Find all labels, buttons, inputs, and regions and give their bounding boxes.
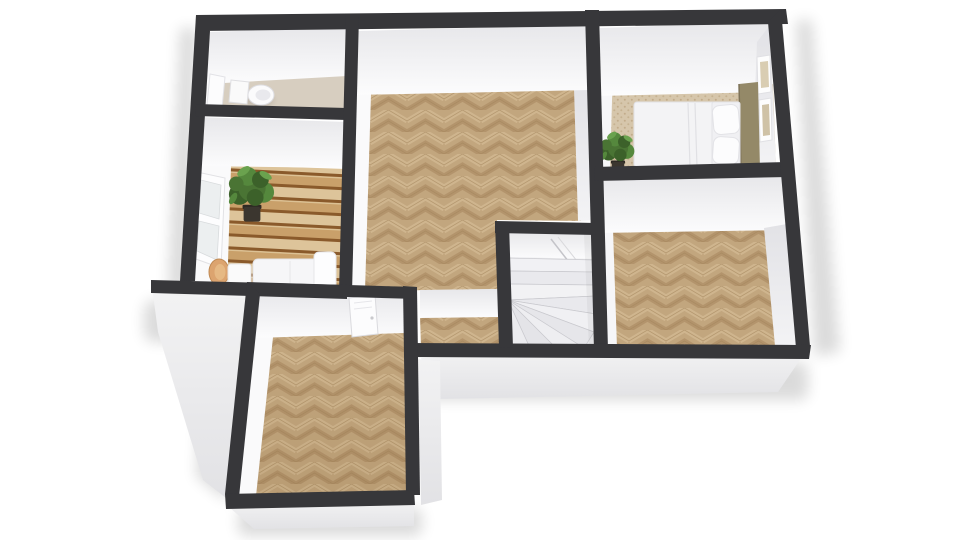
bed-pillow-upper	[712, 104, 740, 135]
wall-stair-top	[495, 221, 596, 235]
wall-frame-lower-art	[762, 104, 770, 136]
window-pane-upper	[199, 180, 221, 219]
stairwell	[506, 232, 600, 348]
stair-tread-1	[506, 258, 596, 272]
bed-pillow-lower	[712, 136, 740, 165]
floor-plan-canvas	[0, 0, 960, 540]
wc-door	[207, 74, 225, 108]
floor-plan-render	[0, 0, 960, 540]
toilet-tank	[229, 80, 249, 104]
stair-north-wall-face	[506, 232, 596, 259]
eastroom-floor	[601, 225, 781, 348]
wall-outer-bottom-right	[406, 343, 811, 359]
bed-headboard	[739, 82, 760, 171]
hallway-floor	[420, 315, 500, 348]
balcony-north-wall-face	[193, 117, 347, 168]
exterior-face-southroom-east	[418, 359, 442, 505]
room-bedroom	[596, 22, 776, 173]
room-balcony	[189, 117, 347, 297]
hallway-north-wall-face	[420, 289, 498, 318]
wall-frame-upper-art	[760, 61, 769, 88]
round-chair-seat	[215, 264, 226, 280]
room-east	[598, 176, 798, 348]
door-leaf	[349, 295, 378, 337]
living-north-wall-face	[355, 25, 590, 95]
stair-tread-2	[507, 271, 596, 285]
door-handle	[370, 316, 373, 319]
southroom-door	[349, 295, 378, 337]
bed-duvet	[634, 102, 716, 168]
room-wc	[196, 27, 347, 113]
eastroom-north-wall-face	[598, 176, 789, 233]
room-south	[236, 290, 408, 496]
stair-winders	[507, 284, 596, 348]
toilet-bowl-inner	[256, 90, 271, 101]
southroom-floor-tint	[252, 328, 408, 496]
wc-north-wall-face	[206, 27, 347, 84]
hallway	[420, 289, 500, 348]
